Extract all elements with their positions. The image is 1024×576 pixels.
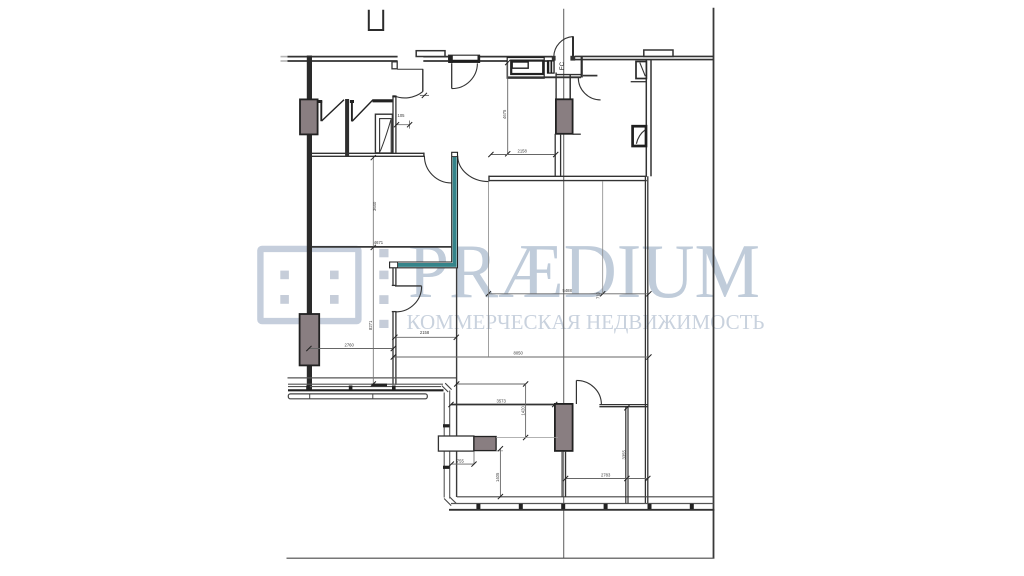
svg-text:PRÆDIUM: PRÆDIUM <box>408 228 760 314</box>
svg-text:5488: 5488 <box>563 288 573 293</box>
svg-text:FC: FC <box>559 61 566 70</box>
svg-text:8271: 8271 <box>368 320 373 330</box>
svg-text:4675: 4675 <box>502 109 507 119</box>
svg-text:755: 755 <box>457 458 465 463</box>
svg-text:3640: 3640 <box>372 201 377 211</box>
svg-text:2783: 2783 <box>601 472 611 477</box>
svg-text:1405: 1405 <box>495 472 500 482</box>
svg-text:105: 105 <box>398 113 406 118</box>
svg-text:2760: 2760 <box>345 342 355 347</box>
svg-text:8050: 8050 <box>514 350 524 355</box>
svg-text:2158: 2158 <box>420 330 430 335</box>
svg-text:2158: 2158 <box>518 148 528 153</box>
svg-text:3573: 3573 <box>497 398 507 403</box>
svg-text:КОММЕРЧЕСКАЯ НЕДВИЖИМОСТЬ: КОММЕРЧЕСКАЯ НЕДВИЖИМОСТЬ <box>407 310 765 334</box>
svg-text:1420: 1420 <box>521 406 526 416</box>
svg-text:3355: 3355 <box>621 450 626 460</box>
svg-text:4671: 4671 <box>374 240 384 245</box>
svg-text:710: 710 <box>596 291 601 299</box>
